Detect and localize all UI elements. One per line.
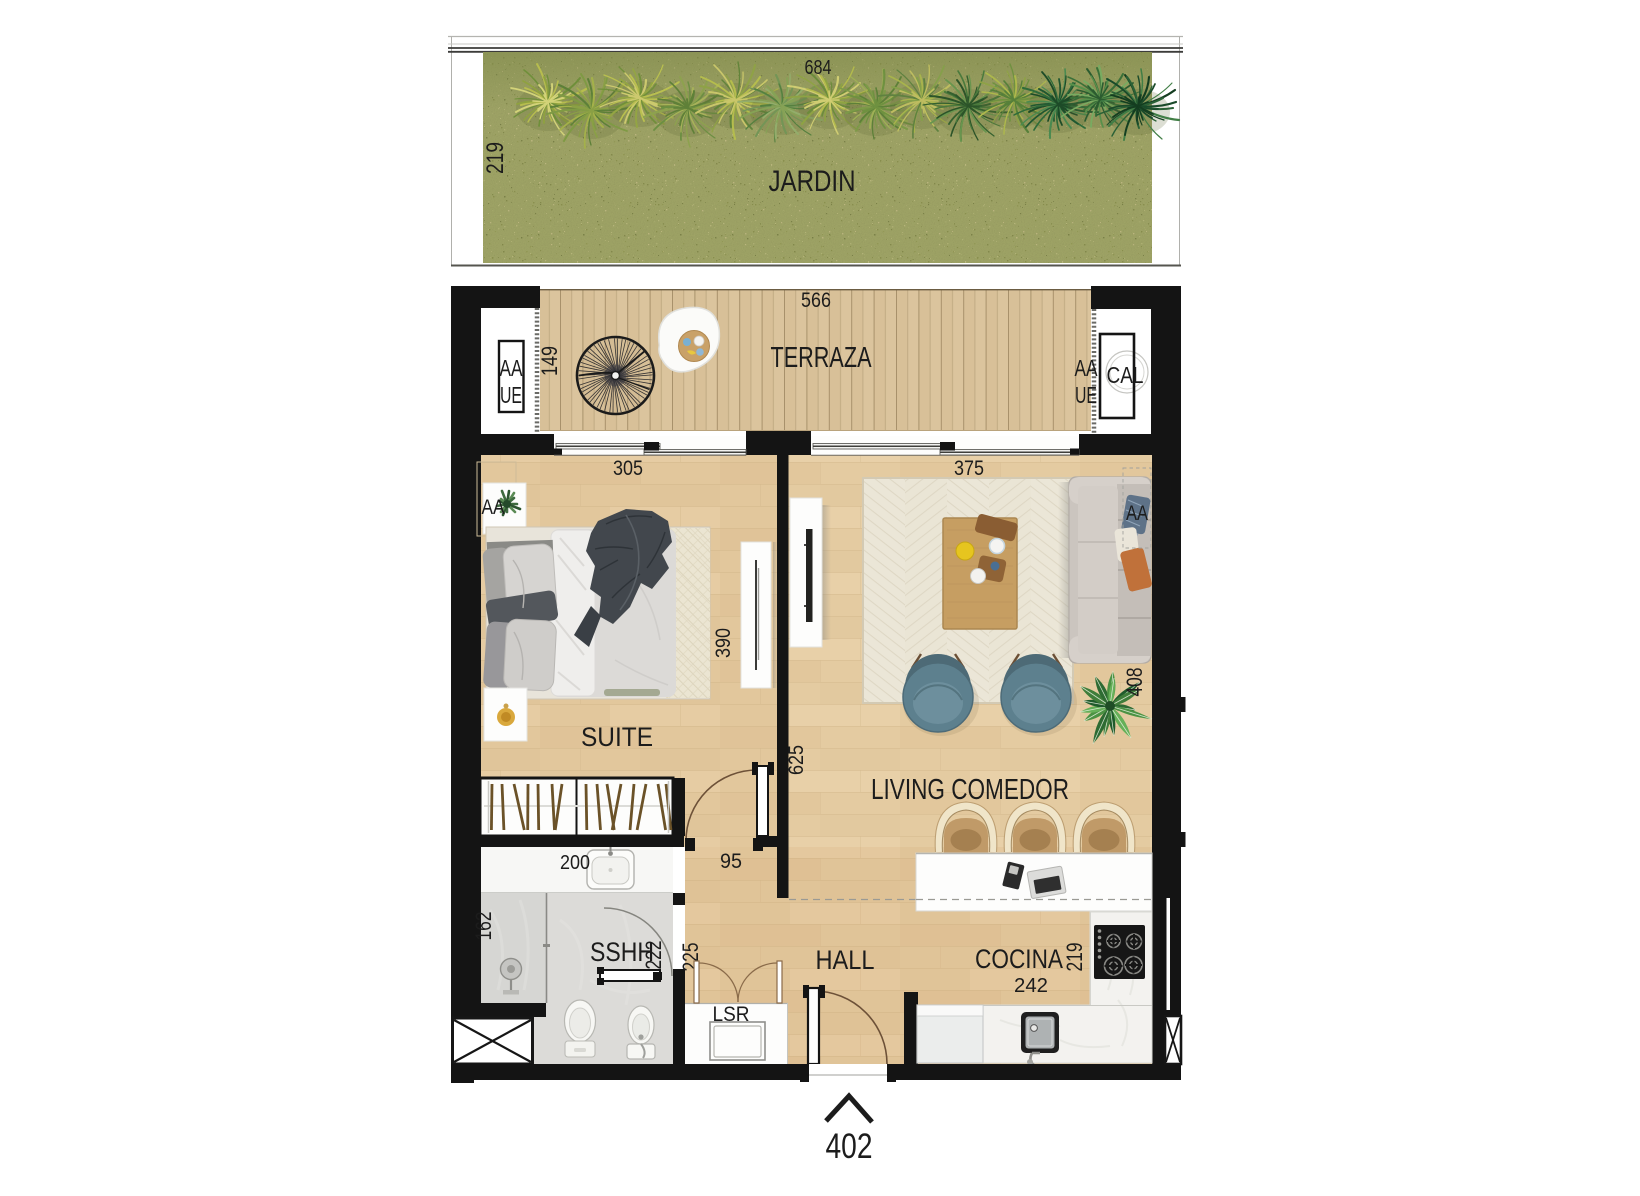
svg-text:TERRAZA: TERRAZA <box>771 342 872 374</box>
svg-text:LIVING COMEDOR: LIVING COMEDOR <box>871 774 1069 806</box>
svg-text:200: 200 <box>560 852 590 874</box>
svg-text:219: 219 <box>482 142 509 174</box>
svg-text:AA: AA <box>1126 502 1148 525</box>
svg-text:305: 305 <box>613 457 643 480</box>
svg-text:UE: UE <box>1075 382 1097 408</box>
svg-text:UE: UE <box>500 382 522 408</box>
svg-text:AA: AA <box>500 355 523 381</box>
svg-text:LSR: LSR <box>713 1003 750 1026</box>
svg-text:222: 222 <box>641 941 666 970</box>
svg-text:CAL: CAL <box>1107 362 1144 388</box>
svg-text:AA: AA <box>1075 355 1098 381</box>
svg-text:162: 162 <box>471 912 496 941</box>
svg-text:95: 95 <box>720 850 742 873</box>
svg-text:149: 149 <box>537 346 562 376</box>
svg-text:AA: AA <box>482 496 505 519</box>
svg-text:684: 684 <box>805 57 832 79</box>
svg-text:JARDIN: JARDIN <box>769 165 856 198</box>
svg-text:390: 390 <box>712 628 735 658</box>
svg-text:242: 242 <box>1014 975 1048 997</box>
svg-text:408: 408 <box>1122 668 1147 697</box>
svg-text:SUITE: SUITE <box>581 722 653 752</box>
svg-text:375: 375 <box>954 457 984 480</box>
svg-text:219: 219 <box>1062 943 1087 972</box>
svg-text:COCINA: COCINA <box>975 944 1063 974</box>
svg-text:402: 402 <box>826 1127 873 1166</box>
svg-text:HALL: HALL <box>816 945 875 975</box>
svg-text:566: 566 <box>801 289 831 312</box>
